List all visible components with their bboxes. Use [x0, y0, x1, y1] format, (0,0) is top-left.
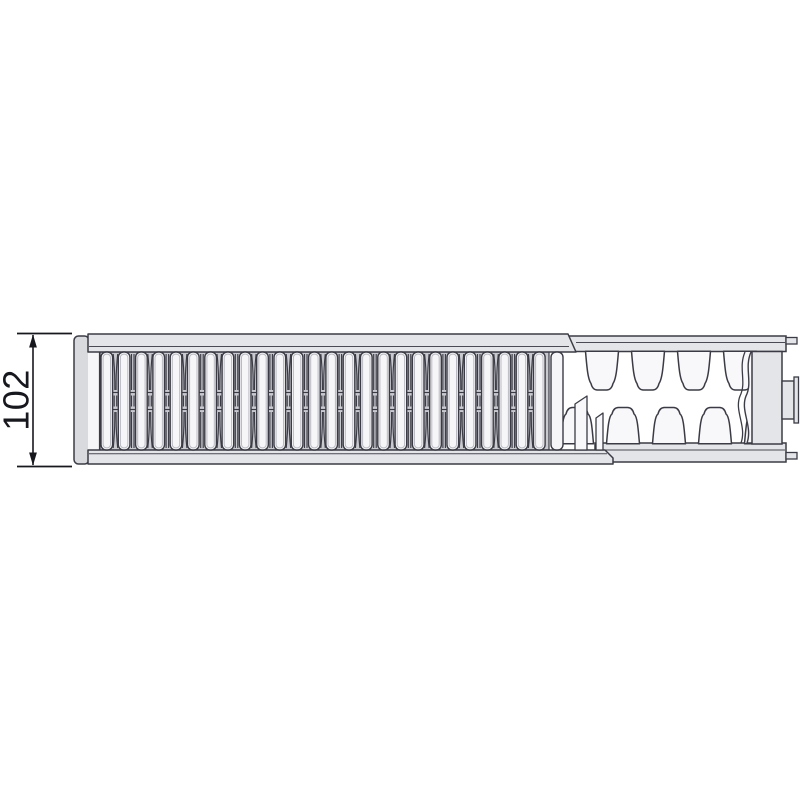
convector-fin-tooth-top	[678, 351, 711, 390]
dimension-arrow-down	[29, 453, 37, 466]
grille-top-plate	[88, 334, 576, 352]
convector-fin-tooth-bottom	[607, 408, 640, 444]
convector-fin-tooth-top	[586, 351, 619, 390]
pipe-stub-bottom	[786, 453, 797, 460]
dimension-label: 102	[0, 369, 37, 431]
grille-slat-at-cut	[551, 352, 563, 450]
grille-bottom-plate	[88, 450, 613, 464]
end-cap	[74, 336, 89, 464]
dimension-annotation: 102	[0, 369, 37, 431]
convector-fin-tooth-top	[632, 351, 665, 390]
convector-fin-tooth-bottom	[653, 408, 686, 444]
end-plate	[752, 352, 782, 445]
cut-fin-edge-strip	[596, 413, 603, 450]
connection-stub-flange	[794, 377, 799, 423]
dimension-arrow-up	[29, 335, 37, 348]
connection-stub	[782, 381, 794, 419]
cut-fin-edge-strip	[575, 396, 587, 450]
cutaway-top-rail	[558, 336, 786, 352]
diagram-canvas: 102	[0, 0, 800, 800]
radiator-technical-drawing: 102	[0, 0, 800, 800]
pipe-stub-top	[786, 338, 797, 345]
cutaway-bottom-rail	[595, 443, 786, 462]
convector-fin-tooth-bottom	[699, 408, 732, 444]
